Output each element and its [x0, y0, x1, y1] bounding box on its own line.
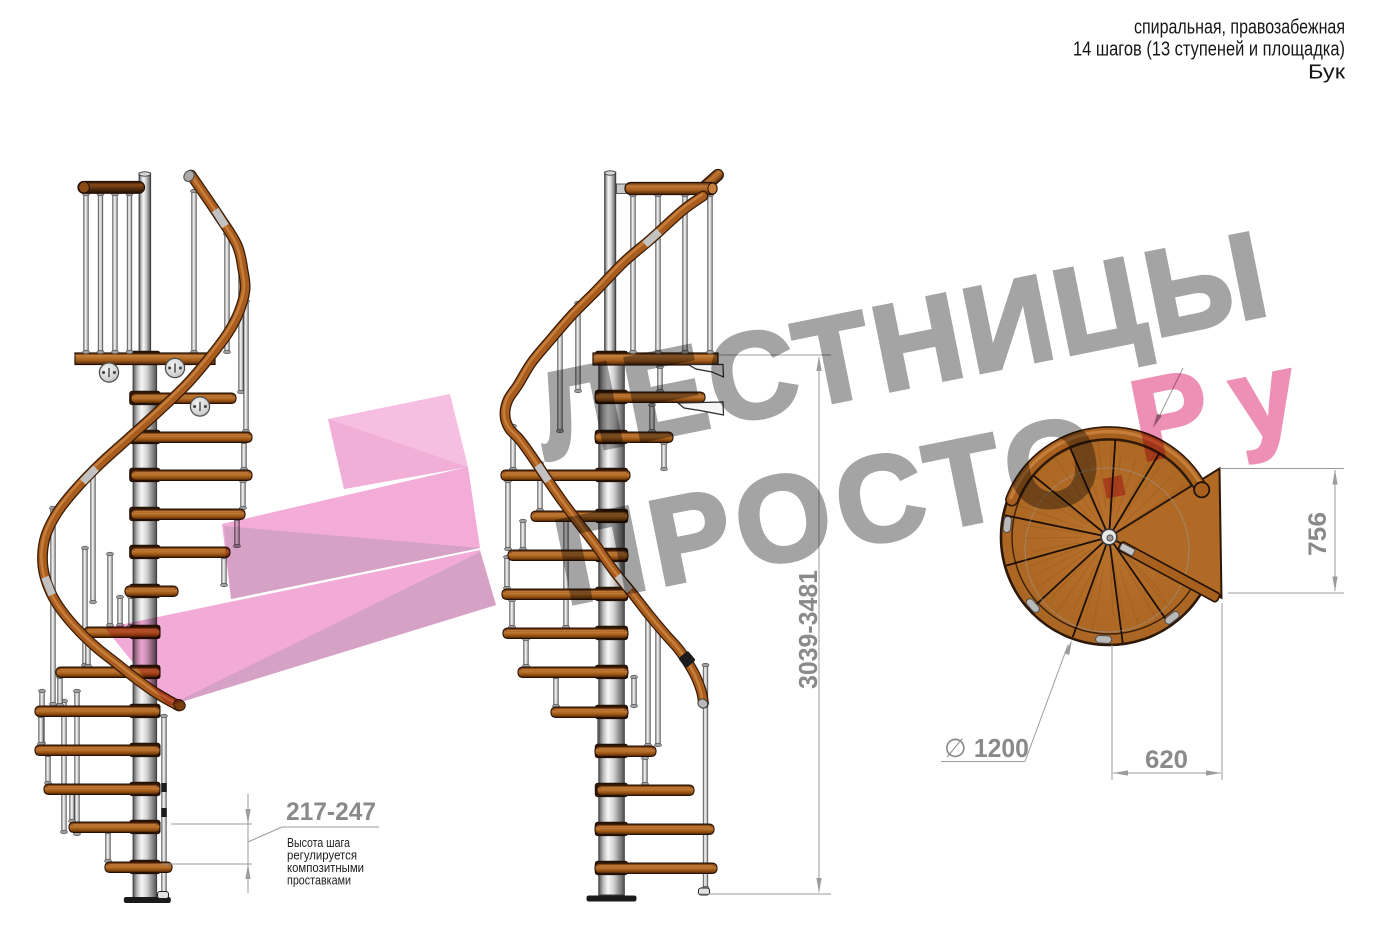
- svg-text:3039-3481: 3039-3481: [793, 570, 823, 689]
- svg-text:проставками: проставками: [287, 873, 351, 888]
- svg-text:14 шагов (13 ступеней и площад: 14 шагов (13 ступеней и площадка): [1073, 39, 1345, 61]
- svg-text:Бук: Бук: [1308, 62, 1345, 84]
- svg-text:756: 756: [1304, 512, 1332, 556]
- svg-text:217-247: 217-247: [286, 798, 376, 826]
- svg-text:∅ 1200: ∅ 1200: [944, 733, 1029, 763]
- svg-text:спиральная, правозабежная: спиральная, правозабежная: [1134, 17, 1345, 39]
- svg-text:620: 620: [1145, 746, 1188, 774]
